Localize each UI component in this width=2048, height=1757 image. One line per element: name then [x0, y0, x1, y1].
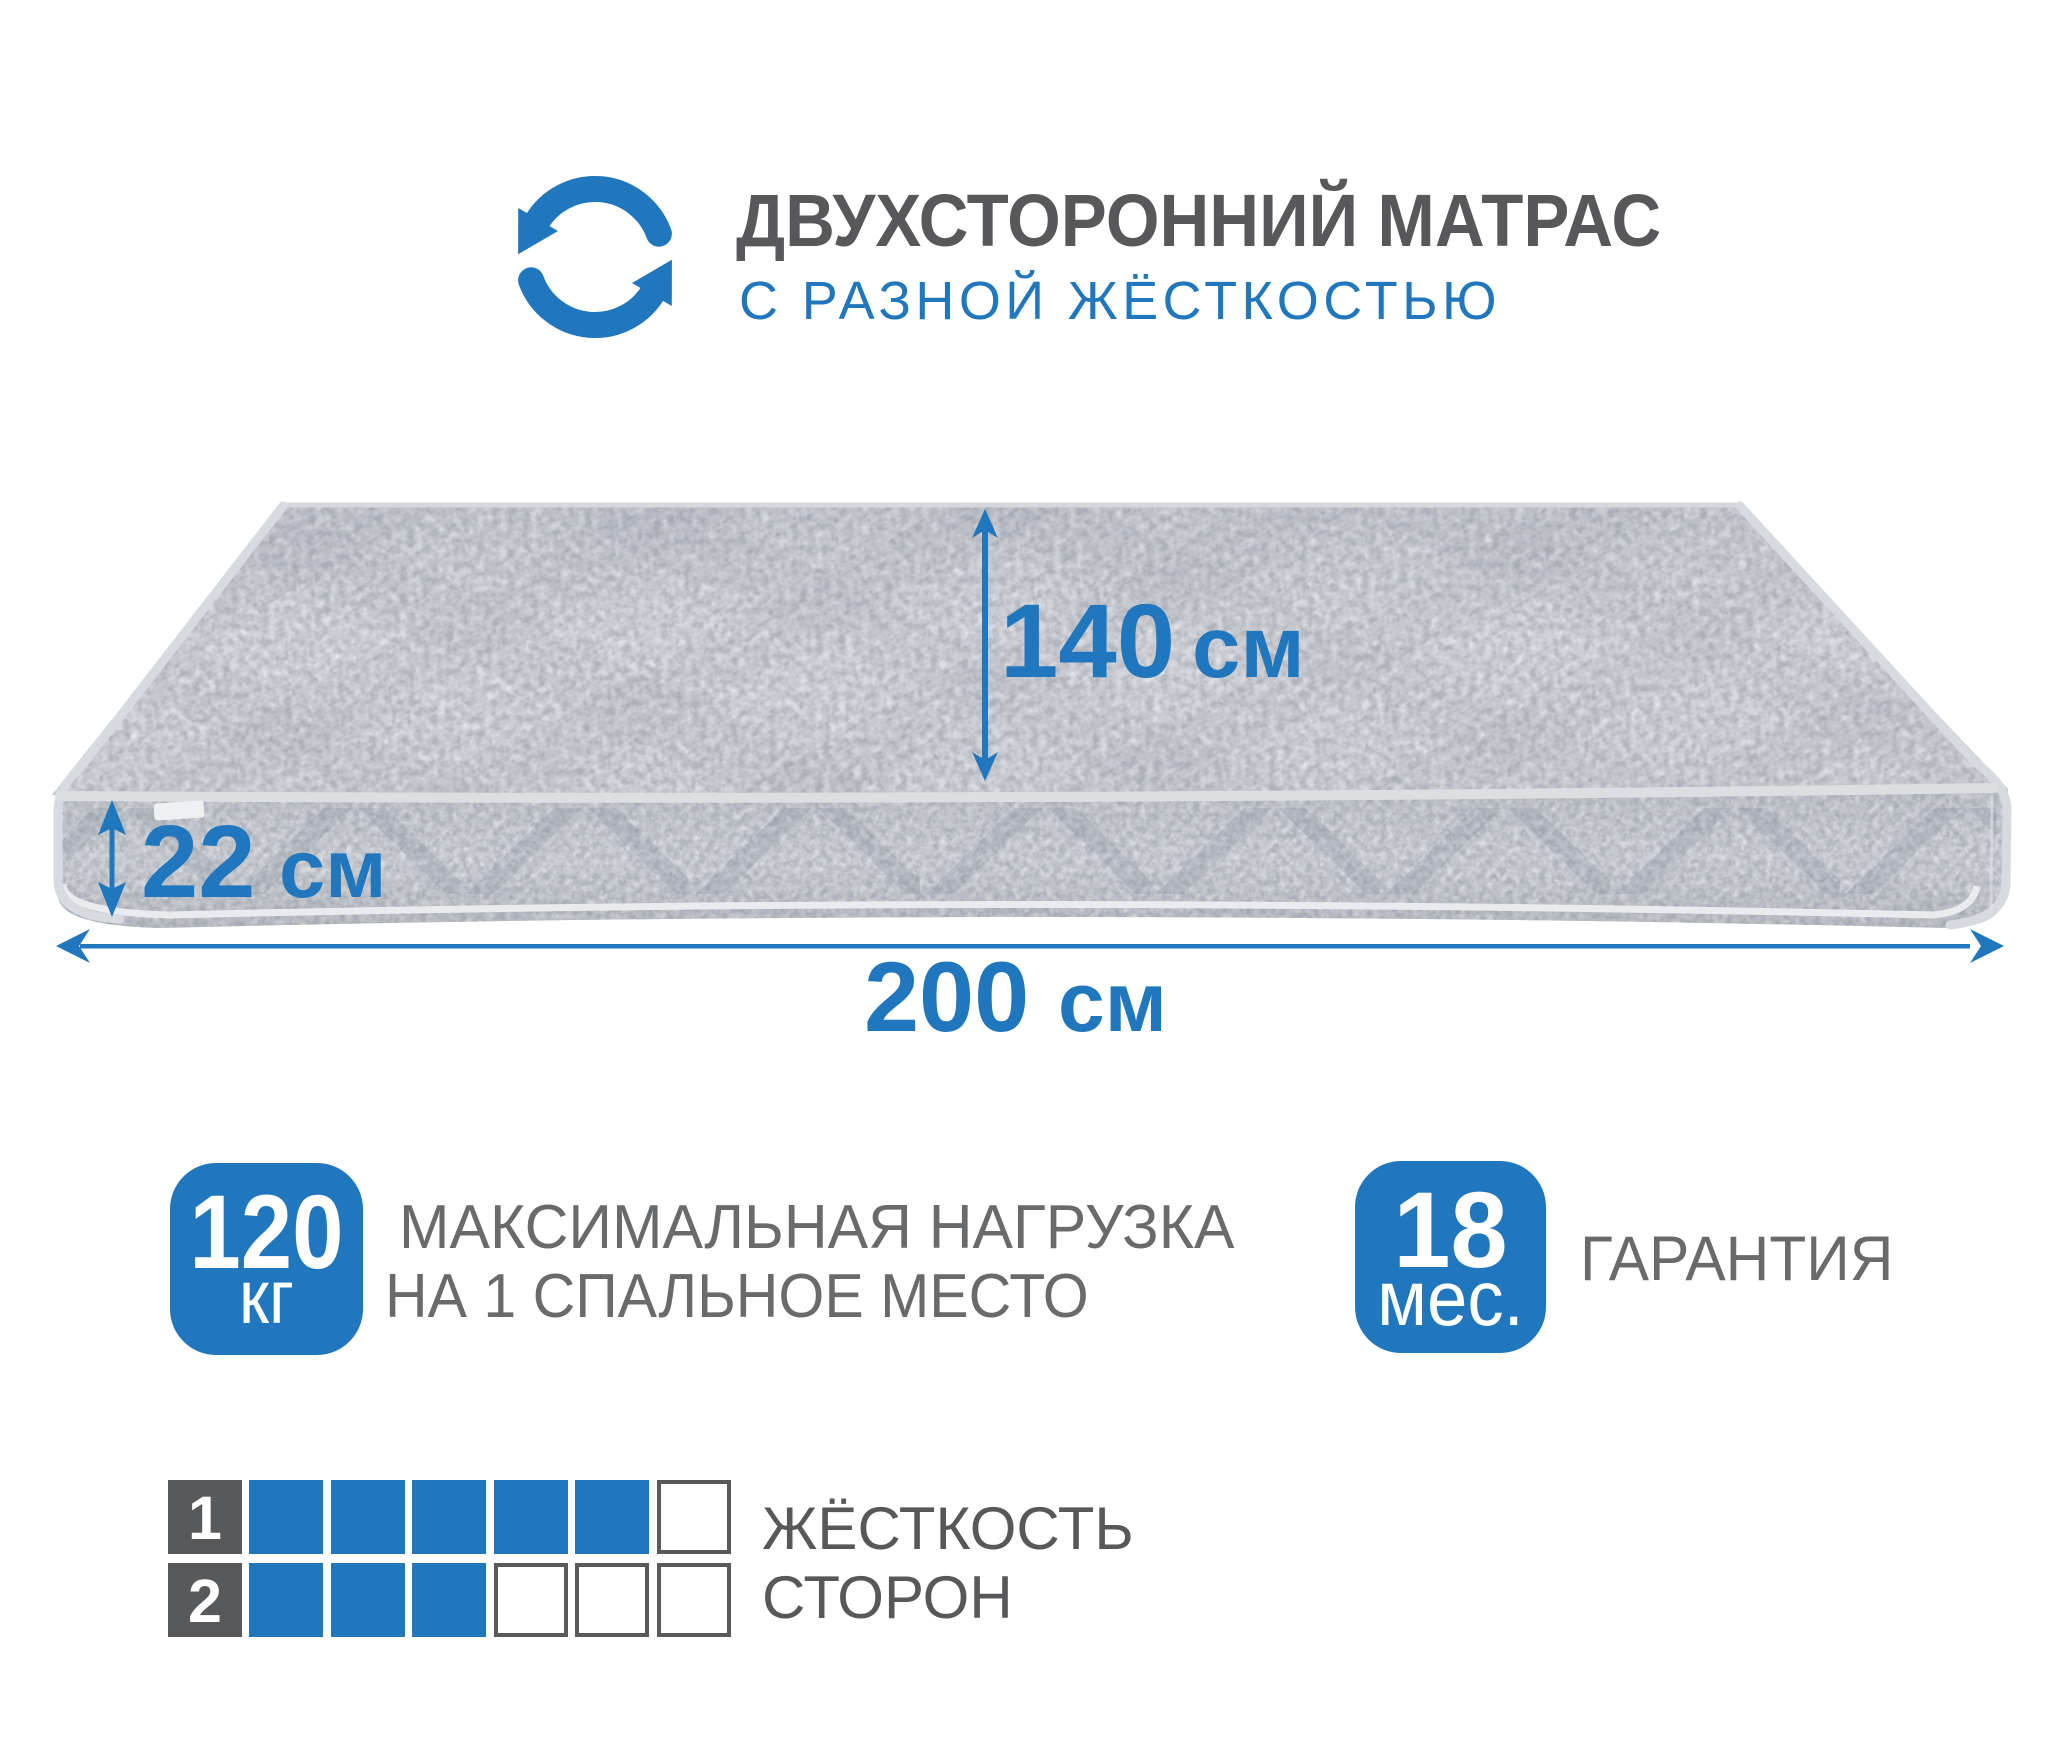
- svg-text:см: см: [1192, 599, 1305, 696]
- svg-text:140: 140: [1000, 583, 1175, 700]
- svg-text:см: см: [1058, 955, 1167, 1049]
- svg-text:22: 22: [141, 804, 256, 919]
- svg-text:200: 200: [864, 941, 1029, 1052]
- svg-text:см: см: [279, 822, 387, 915]
